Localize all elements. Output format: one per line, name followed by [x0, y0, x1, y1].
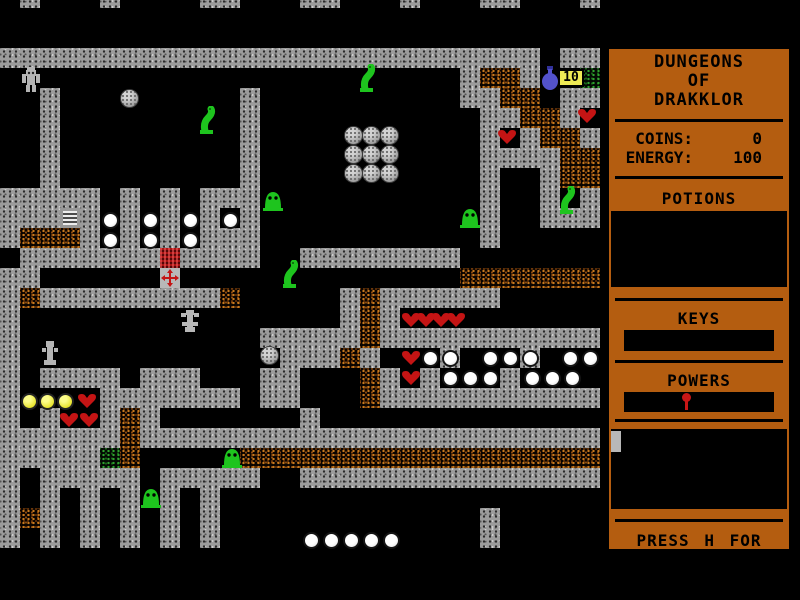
wall-tile — [540, 208, 560, 228]
potions-box — [611, 211, 787, 287]
wall-tile — [240, 468, 260, 488]
boulder-sprite — [344, 126, 363, 145]
wall-tile — [540, 388, 560, 408]
rubble-tile — [540, 448, 560, 468]
wall-tile — [20, 268, 40, 288]
wall-tile — [460, 428, 480, 448]
wall-tile — [360, 468, 380, 488]
pearl-sprite — [182, 232, 199, 249]
rubble-tile — [260, 448, 280, 468]
wall-tile — [500, 48, 520, 68]
game-title: DUNGEONS OF DRAKKLOR — [609, 49, 789, 110]
wall-tile — [40, 248, 60, 268]
pearl-sprite — [422, 350, 439, 367]
rubble-tile — [540, 128, 560, 148]
wall-tile — [500, 428, 520, 448]
wall-tile — [180, 48, 200, 68]
pearl-sprite — [582, 350, 599, 367]
wall-tile — [380, 328, 400, 348]
wall-tile — [340, 248, 360, 268]
wall-tile — [440, 48, 460, 68]
rubble-tile — [520, 448, 540, 468]
boulder-sprite — [362, 126, 381, 145]
wall-tile — [320, 48, 340, 68]
wall-tile — [200, 468, 220, 488]
wall-tile — [460, 288, 480, 308]
rubble-tile — [60, 228, 80, 248]
rubble-tile — [540, 108, 560, 128]
worm-sprite — [360, 64, 380, 84]
wall-tile — [60, 448, 80, 468]
wall-tile — [480, 288, 500, 308]
pearl-sprite — [142, 232, 159, 249]
wall-tile — [120, 188, 140, 208]
energy-value: 100 — [693, 148, 762, 167]
wall-tile — [540, 168, 560, 188]
wall-tile — [280, 328, 300, 348]
rubble-tile — [20, 228, 40, 248]
statue2-sprite — [40, 340, 60, 360]
boulder-sprite — [380, 126, 399, 145]
wall-tile — [160, 388, 180, 408]
chest-top-sprite — [160, 248, 180, 268]
wall-tile — [420, 428, 440, 448]
wall-tile — [460, 48, 480, 68]
yellow-sprite — [39, 393, 56, 410]
chest-cross-sprite — [160, 268, 180, 288]
yellow-sprite — [57, 393, 74, 410]
wall-tile — [160, 228, 180, 248]
wall-tile — [580, 188, 600, 208]
wall-tile — [40, 408, 60, 428]
wall-tile — [380, 48, 400, 68]
wall-tile — [240, 148, 260, 168]
wall-tile — [520, 428, 540, 448]
rubble-tile — [120, 448, 140, 468]
wall-tile — [580, 388, 600, 408]
wall-tile — [500, 368, 520, 388]
wall-tile — [340, 308, 360, 328]
grate-sprite — [60, 208, 80, 228]
pearl-sprite — [522, 350, 539, 367]
rubble-tile — [360, 388, 380, 408]
potions-label: POTIONS — [609, 189, 789, 208]
wall-tile — [120, 48, 140, 68]
boulder-sprite — [380, 145, 399, 164]
pearl-sprite — [383, 532, 400, 549]
wall-tile — [0, 308, 20, 328]
wall-tile — [540, 468, 560, 488]
wall-tile — [200, 228, 220, 248]
wall-tile — [340, 468, 360, 488]
wall-tile — [220, 188, 240, 208]
wall-tile — [400, 0, 420, 8]
wall-tile — [340, 48, 360, 68]
wall-tile — [200, 428, 220, 448]
wall-tile — [520, 468, 540, 488]
wall-tile — [0, 528, 20, 548]
wall-tile — [60, 48, 80, 68]
rubble-tile — [560, 268, 580, 288]
wall-tile — [0, 268, 20, 288]
wall-tile — [320, 428, 340, 448]
wall-tile — [260, 328, 280, 348]
wall-tile — [300, 248, 320, 268]
wall-tile — [200, 528, 220, 548]
rubble-tile — [120, 408, 140, 428]
wall-tile — [120, 388, 140, 408]
wall-tile — [220, 0, 240, 8]
pearl-sprite — [544, 370, 561, 387]
wall-tile — [340, 288, 360, 308]
statue-sprite — [180, 310, 200, 330]
wall-tile — [40, 428, 60, 448]
wall-tile — [40, 168, 60, 188]
wall-tile — [20, 0, 40, 8]
wall-tile — [540, 328, 560, 348]
wall-tile — [80, 228, 100, 248]
divider — [615, 519, 783, 522]
wall-tile — [520, 68, 540, 88]
rubble-tile — [480, 268, 500, 288]
wall-tile — [500, 328, 520, 348]
wall-tile — [460, 468, 480, 488]
rubble-tile — [520, 88, 540, 108]
dungeon-map-viewport[interactable]: 10 — [0, 0, 600, 600]
pearl-sprite — [524, 370, 541, 387]
yellow-sprite — [21, 393, 38, 410]
wall-tile — [580, 128, 600, 148]
wall-tile — [80, 448, 100, 468]
wall-tile — [220, 468, 240, 488]
rubble-tile — [360, 448, 380, 468]
heart-sprite — [447, 312, 467, 332]
worm-sprite — [283, 260, 303, 280]
divider — [615, 176, 783, 179]
wall-tile — [240, 108, 260, 128]
divider — [615, 298, 783, 301]
rubble-tile — [400, 448, 420, 468]
wall-tile — [180, 288, 200, 308]
pearl-sprite — [482, 350, 499, 367]
wall-tile — [200, 48, 220, 68]
pearl-sprite — [482, 370, 499, 387]
stats-block: COINS: 0 ENERGY: 100 — [609, 129, 789, 167]
rubble-tile — [20, 288, 40, 308]
power-pin-icon — [682, 393, 691, 402]
rubble-tile — [380, 448, 400, 468]
wall-tile — [320, 328, 340, 348]
wall-tile — [100, 428, 120, 448]
rubble-tile — [480, 68, 500, 88]
wall-tile — [420, 288, 440, 308]
wall-tile — [200, 208, 220, 228]
rubble-tile — [560, 148, 580, 168]
heart-sprite — [80, 412, 100, 432]
wall-tile — [80, 488, 100, 508]
wall-tile — [540, 428, 560, 448]
wall-tile — [40, 508, 60, 528]
wall-tile — [500, 0, 520, 8]
wall-tile — [480, 328, 500, 348]
badge-sprite: 10 — [558, 69, 584, 87]
wall-tile — [480, 228, 500, 248]
wall-tile — [480, 128, 500, 148]
wall-tile — [60, 468, 80, 488]
wall-tile — [220, 248, 240, 268]
pearl-sprite — [442, 370, 459, 387]
wall-tile — [160, 428, 180, 448]
wall-tile — [60, 248, 80, 268]
divider — [615, 119, 783, 122]
wall-tile — [260, 48, 280, 68]
wall-tile — [220, 48, 240, 68]
rubble-tile — [540, 268, 560, 288]
wall-tile — [160, 48, 180, 68]
wall-tile — [520, 48, 540, 68]
divider — [615, 419, 783, 422]
wall-tile — [100, 468, 120, 488]
wall-tile — [500, 388, 520, 408]
wall-tile — [300, 48, 320, 68]
pearl-sprite — [142, 212, 159, 229]
game-screen: 10 DUNGEONS OF DRAKKLOR COINS: 0 ENERGY:… — [0, 0, 800, 600]
wall-tile — [540, 188, 560, 208]
status-panel: DUNGEONS OF DRAKKLOR COINS: 0 ENERGY: 10… — [604, 44, 794, 554]
wall-tile — [100, 248, 120, 268]
rubble-tile — [500, 268, 520, 288]
wall-tile — [0, 288, 20, 308]
wall-tile — [420, 48, 440, 68]
pearl-sprite — [462, 370, 479, 387]
wall-tile — [580, 468, 600, 488]
wall-tile — [460, 88, 480, 108]
wall-tile — [580, 328, 600, 348]
wall-tile — [160, 288, 180, 308]
boulder-sprite — [260, 346, 279, 365]
heart-sprite — [498, 129, 518, 149]
wall-tile — [440, 288, 460, 308]
wall-tile — [480, 188, 500, 208]
wall-tile — [300, 328, 320, 348]
wall-tile — [40, 148, 60, 168]
wall-tile — [200, 0, 220, 8]
wall-tile — [480, 428, 500, 448]
heart-sprite — [402, 370, 422, 390]
wall-tile — [380, 248, 400, 268]
game-title-line2: OF — [609, 72, 789, 91]
wall-tile — [80, 528, 100, 548]
slug-sprite — [460, 204, 480, 224]
wall-tile — [580, 428, 600, 448]
wall-tile — [40, 208, 60, 228]
wall-tile — [80, 508, 100, 528]
wall-tile — [260, 388, 280, 408]
wall-tile — [120, 288, 140, 308]
pearl-sprite — [562, 350, 579, 367]
wall-tile — [340, 328, 360, 348]
wall-tile — [20, 208, 40, 228]
keys-bar — [624, 330, 774, 351]
wall-tile — [240, 128, 260, 148]
wall-tile — [400, 468, 420, 488]
wall-tile — [0, 368, 20, 388]
wall-tile — [500, 148, 520, 168]
game-title-line1: DUNGEONS — [609, 53, 789, 72]
boulder-sprite — [362, 164, 381, 183]
wall-tile — [60, 288, 80, 308]
wall-tile — [100, 288, 120, 308]
rubble-tile — [580, 448, 600, 468]
wall-tile — [440, 248, 460, 268]
wall-tile — [480, 48, 500, 68]
heart-sprite — [402, 350, 422, 370]
wall-tile — [380, 308, 400, 328]
wall-tile — [0, 448, 20, 468]
rubble-tile — [340, 448, 360, 468]
wall-tile — [0, 208, 20, 228]
boulder-sprite — [344, 164, 363, 183]
rubble-tile — [500, 68, 520, 88]
worm-sprite — [560, 186, 580, 206]
wall-tile — [400, 388, 420, 408]
rubble-tile — [500, 88, 520, 108]
inventory-slot-marker — [611, 431, 621, 452]
wall-tile — [180, 428, 200, 448]
wall-tile — [380, 428, 400, 448]
wall-tile — [500, 108, 520, 128]
keys-label: KEYS — [609, 309, 789, 328]
wall-tile — [520, 148, 540, 168]
wall-tile — [0, 328, 20, 348]
rubble-tile — [520, 108, 540, 128]
wall-tile — [160, 528, 180, 548]
rubble-tile — [360, 368, 380, 388]
wall-tile — [380, 388, 400, 408]
wall-tile — [480, 208, 500, 228]
wall-tile — [360, 428, 380, 448]
wall-tile — [80, 208, 100, 228]
wall-tile — [340, 428, 360, 448]
wall-tile — [100, 48, 120, 68]
wall-tile — [400, 48, 420, 68]
rubble-tile — [460, 448, 480, 468]
wall-tile — [480, 388, 500, 408]
wall-tile — [140, 408, 160, 428]
wall-tile — [40, 448, 60, 468]
wall-tile — [500, 468, 520, 488]
wall-tile — [240, 48, 260, 68]
wall-tile — [180, 468, 200, 488]
rubble-tile — [420, 448, 440, 468]
wall-tile — [480, 168, 500, 188]
wall-tile — [40, 188, 60, 208]
wall-tile — [0, 228, 20, 248]
wall-tile — [40, 528, 60, 548]
wall-tile — [20, 48, 40, 68]
rubble-tile — [220, 288, 240, 308]
wall-tile — [80, 288, 100, 308]
rubble-tile — [580, 148, 600, 168]
wall-tile — [180, 368, 200, 388]
wall-tile — [0, 408, 20, 428]
wall-tile — [180, 248, 200, 268]
rubble-tile — [340, 348, 360, 368]
wall-tile — [420, 388, 440, 408]
wall-tile — [200, 488, 220, 508]
wall-tile — [480, 88, 500, 108]
slug-sprite — [222, 444, 242, 464]
flask-sprite — [540, 66, 560, 86]
wall-tile — [280, 348, 300, 368]
wall-tile — [580, 88, 600, 108]
pearl-sprite — [502, 350, 519, 367]
wall-tile — [280, 428, 300, 448]
wall-tile — [420, 248, 440, 268]
wall-tile — [480, 468, 500, 488]
wall-tile — [240, 208, 260, 228]
wall-tile — [400, 288, 420, 308]
wall-tile — [100, 388, 120, 408]
wall-tile — [480, 508, 500, 528]
wall-tile — [160, 208, 180, 228]
wall-tile — [180, 388, 200, 408]
wall-tile — [240, 188, 260, 208]
wall-tile — [160, 488, 180, 508]
wall-tile — [140, 288, 160, 308]
wall-tile — [200, 508, 220, 528]
wall-tile — [0, 468, 20, 488]
pearl-sprite — [363, 532, 380, 549]
wall-tile — [20, 188, 40, 208]
wall-tile — [380, 288, 400, 308]
wall-tile — [80, 248, 100, 268]
wall-tile — [280, 48, 300, 68]
rubble-tile — [520, 268, 540, 288]
wall-tile — [40, 108, 60, 128]
wall-tile — [480, 528, 500, 548]
wall-tile — [0, 388, 20, 408]
rubble-tile — [460, 268, 480, 288]
wall-tile — [140, 388, 160, 408]
rubble-tile — [580, 268, 600, 288]
golem-sprite — [22, 67, 42, 87]
wall-tile — [240, 248, 260, 268]
wall-tile — [40, 368, 60, 388]
wall-tile — [40, 288, 60, 308]
wall-tile — [240, 168, 260, 188]
wall-tile — [220, 228, 240, 248]
pearl-sprite — [222, 212, 239, 229]
wall-tile — [560, 48, 580, 68]
rubble-tile — [500, 448, 520, 468]
wall-tile — [520, 128, 540, 148]
wall-tile — [0, 508, 20, 528]
coins-value: 0 — [693, 129, 762, 148]
boulder-sprite — [362, 145, 381, 164]
wall-tile — [560, 88, 580, 108]
wall-tile — [60, 368, 80, 388]
wall-tile — [0, 188, 20, 208]
wall-tile — [240, 428, 260, 448]
rubble-tile — [440, 448, 460, 468]
wall-tile — [360, 348, 380, 368]
powers-bar — [624, 392, 774, 412]
wall-tile — [480, 0, 500, 8]
wall-tile — [420, 468, 440, 488]
wall-tile — [120, 508, 140, 528]
wall-tile — [320, 248, 340, 268]
